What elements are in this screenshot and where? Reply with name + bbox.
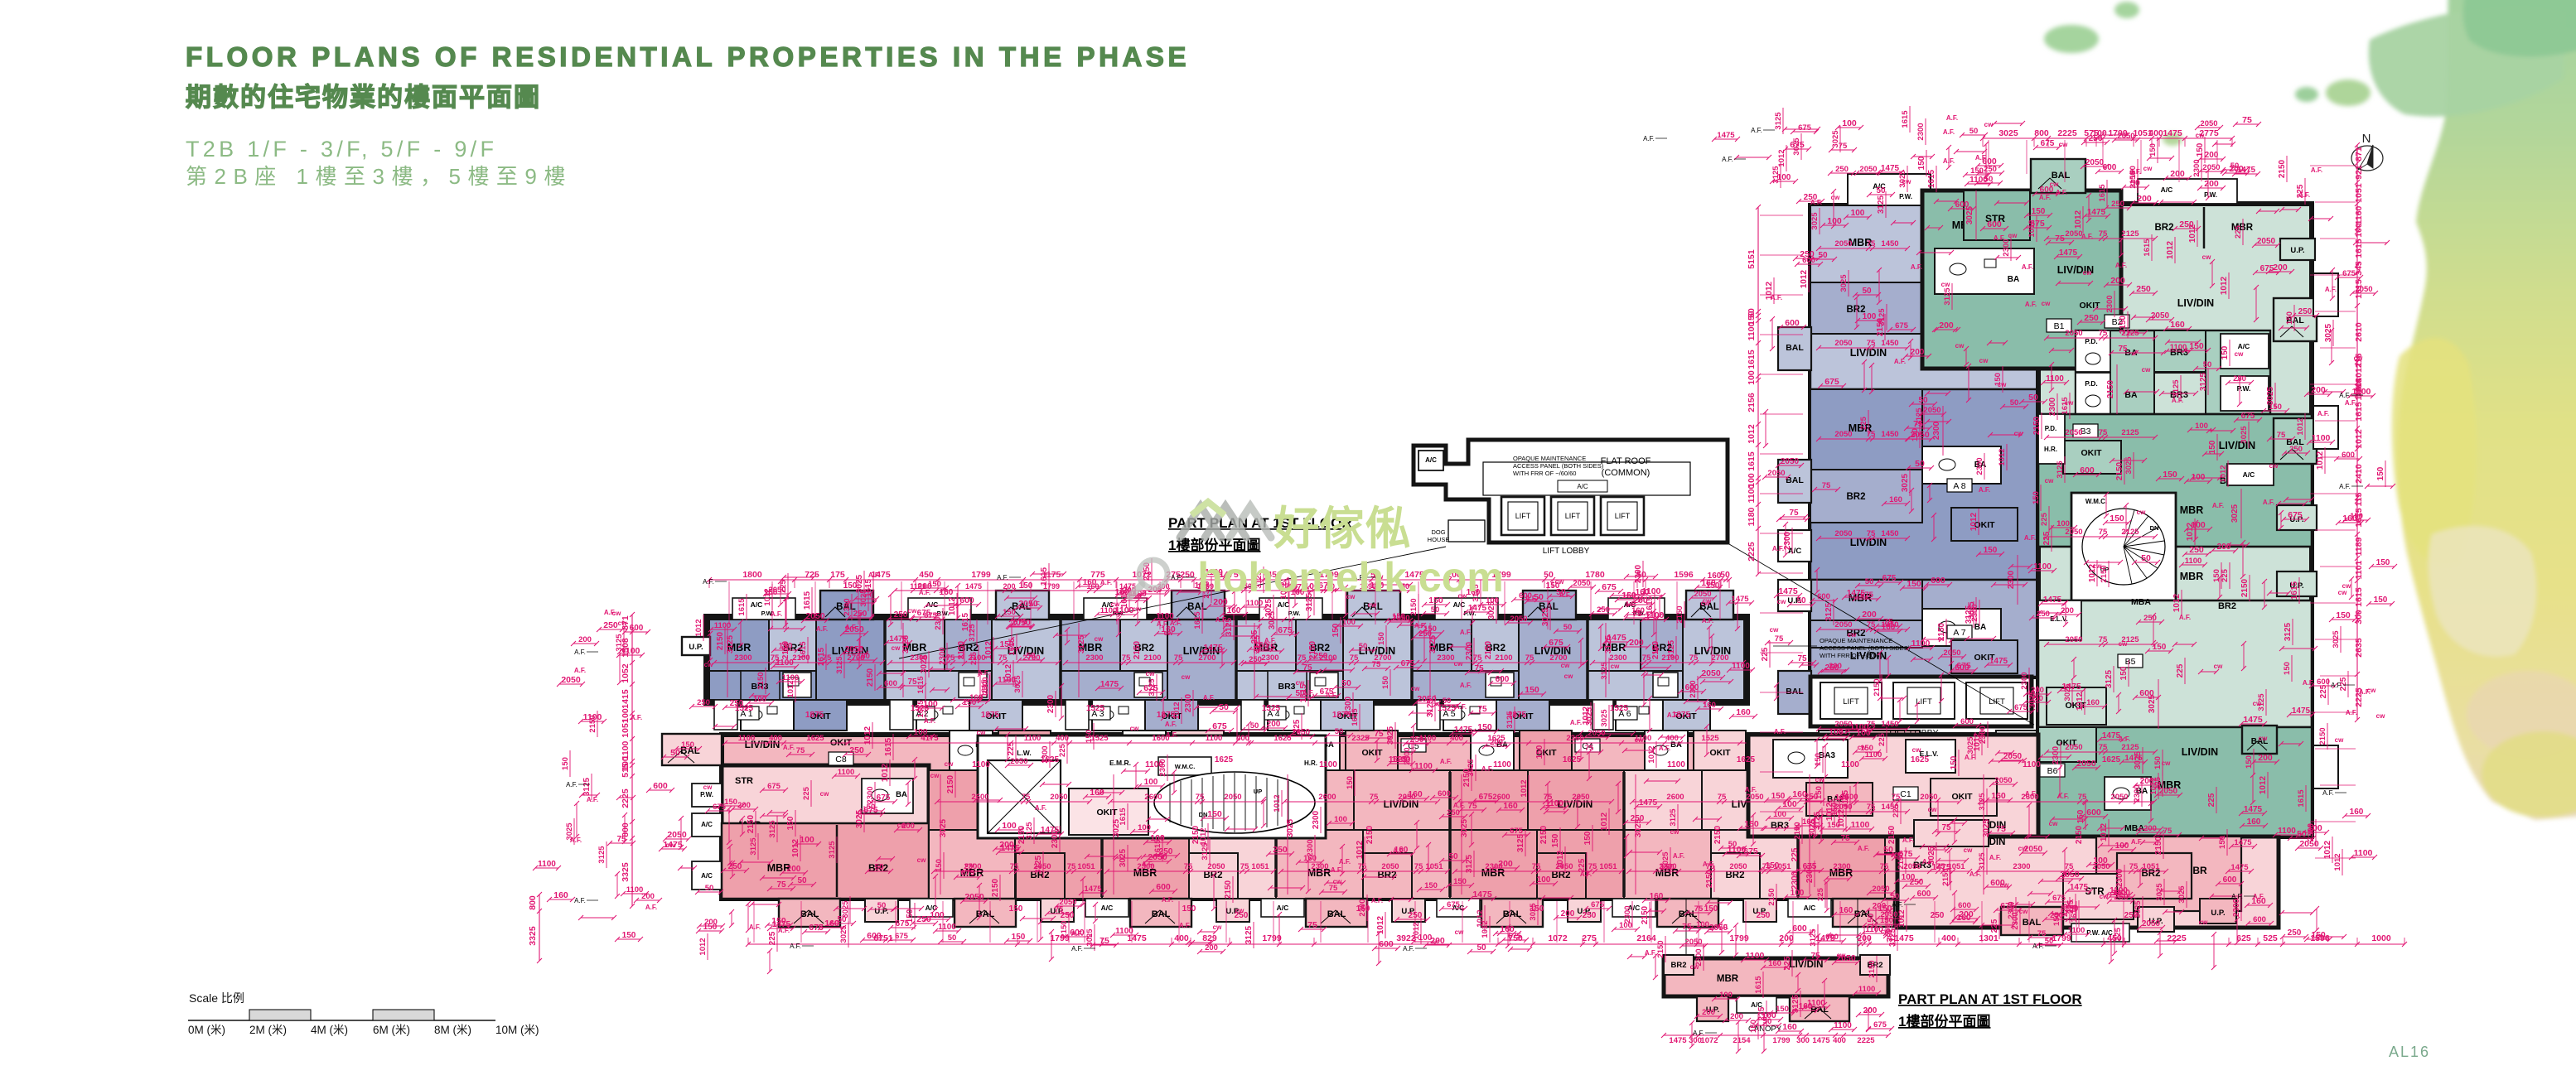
svg-text:1012: 1012 bbox=[1172, 702, 1182, 719]
svg-text:250: 250 bbox=[2143, 614, 2157, 623]
svg-text:cw: cw bbox=[2018, 845, 2027, 852]
svg-text:100: 100 bbox=[2093, 856, 2108, 866]
svg-text:600: 600 bbox=[1438, 789, 1451, 798]
svg-text:225: 225 bbox=[1058, 743, 1067, 757]
svg-text:3025: 3025 bbox=[2240, 426, 2249, 444]
svg-text:cw: cw bbox=[1777, 598, 1786, 605]
svg-text:1100: 1100 bbox=[1911, 639, 1931, 649]
svg-text:675: 675 bbox=[1591, 900, 1605, 909]
svg-text:3025: 3025 bbox=[1386, 726, 1395, 745]
svg-text:2300: 2300 bbox=[1085, 653, 1103, 663]
svg-text:160: 160 bbox=[1703, 701, 1716, 710]
svg-text:2050: 2050 bbox=[1588, 729, 1605, 738]
svg-text:250: 250 bbox=[2289, 445, 2303, 454]
svg-text:675: 675 bbox=[2241, 412, 2255, 421]
svg-text:2050: 2050 bbox=[1510, 615, 1527, 624]
svg-text:1475: 1475 bbox=[1717, 131, 1735, 140]
svg-text:250: 250 bbox=[2089, 134, 2103, 143]
svg-text:675: 675 bbox=[2014, 703, 2028, 712]
svg-text:1525: 1525 bbox=[1262, 704, 1281, 713]
svg-text:50: 50 bbox=[1443, 697, 1452, 706]
svg-text:150: 150 bbox=[2245, 755, 2254, 769]
svg-text:150: 150 bbox=[2374, 596, 2388, 605]
svg-text:1450: 1450 bbox=[1881, 430, 1898, 439]
svg-text:LIV/DIN: LIV/DIN bbox=[1850, 347, 1887, 359]
svg-text:2600: 2600 bbox=[1666, 793, 1684, 802]
svg-text:100: 100 bbox=[2354, 223, 2364, 238]
svg-text:2300: 2300 bbox=[1312, 810, 1321, 829]
svg-text:50: 50 bbox=[2203, 360, 2212, 369]
svg-text:1100: 1100 bbox=[1728, 845, 1747, 855]
svg-text:cw: cw bbox=[820, 790, 829, 798]
svg-text:P.W.: P.W. bbox=[2237, 384, 2251, 393]
svg-text:cw: cw bbox=[1368, 601, 1377, 609]
svg-text:2150: 2150 bbox=[2318, 727, 2327, 745]
svg-text:150: 150 bbox=[2110, 514, 2124, 523]
svg-text:50: 50 bbox=[1796, 596, 1806, 605]
svg-text:cw: cw bbox=[2049, 820, 2058, 827]
svg-text:cw: cw bbox=[2119, 640, 2128, 648]
svg-text:cw: cw bbox=[2269, 462, 2279, 470]
svg-text:3025: 3025 bbox=[565, 822, 574, 841]
svg-text:1012: 1012 bbox=[1600, 812, 1609, 831]
svg-text:200: 200 bbox=[2031, 686, 2044, 695]
svg-text:1615: 1615 bbox=[1747, 451, 1757, 471]
svg-text:225: 225 bbox=[969, 651, 979, 665]
svg-text:1475: 1475 bbox=[2087, 208, 2106, 217]
svg-text:250: 250 bbox=[2037, 610, 2050, 619]
svg-text:600: 600 bbox=[2223, 875, 2237, 885]
svg-text:250: 250 bbox=[849, 745, 864, 755]
svg-text:cw: cw bbox=[1635, 736, 1644, 744]
svg-text:2300: 2300 bbox=[1805, 864, 1815, 883]
svg-text:HOUSE: HOUSE bbox=[1428, 536, 1450, 543]
svg-text:LIV/DIN: LIV/DIN bbox=[2182, 746, 2218, 758]
svg-text:W.M.C.: W.M.C. bbox=[2085, 498, 2107, 505]
svg-text:FLAT ROOF: FLAT ROOF bbox=[1601, 456, 1651, 466]
svg-text:250: 250 bbox=[2114, 892, 2129, 902]
svg-text:150: 150 bbox=[2032, 491, 2041, 504]
svg-text:cw: cw bbox=[1564, 673, 1573, 680]
svg-text:675: 675 bbox=[1895, 321, 1909, 330]
svg-text:3125: 3125 bbox=[1791, 994, 1800, 1013]
svg-text:150: 150 bbox=[2285, 311, 2294, 325]
svg-text:600: 600 bbox=[1931, 576, 1945, 586]
svg-text:1525: 1525 bbox=[1610, 704, 1629, 713]
svg-text:A.F.: A.F. bbox=[2311, 166, 2322, 174]
svg-text:1100: 1100 bbox=[738, 734, 756, 743]
svg-text:A.F.: A.F. bbox=[1810, 199, 1822, 206]
svg-text:A.F.: A.F. bbox=[1171, 574, 1182, 581]
svg-text:75: 75 bbox=[1477, 705, 1487, 714]
svg-text:225: 225 bbox=[2176, 663, 2185, 678]
svg-text:1450: 1450 bbox=[1881, 529, 1898, 538]
svg-text:200: 200 bbox=[2258, 753, 2273, 763]
svg-text:200: 200 bbox=[2204, 179, 2219, 189]
svg-text:A.F.: A.F. bbox=[645, 904, 657, 911]
svg-text:400: 400 bbox=[1236, 734, 1249, 743]
svg-text:100: 100 bbox=[2195, 422, 2208, 431]
svg-text:75: 75 bbox=[1532, 862, 1541, 871]
svg-text:1012: 1012 bbox=[694, 619, 703, 636]
svg-text:50: 50 bbox=[1026, 652, 1036, 661]
svg-text:P.W.: P.W. bbox=[700, 791, 713, 798]
svg-text:1012: 1012 bbox=[1777, 149, 1786, 166]
svg-text:50: 50 bbox=[2297, 829, 2307, 839]
svg-text:LIV/DIN: LIV/DIN bbox=[2219, 440, 2255, 451]
svg-text:B6: B6 bbox=[2047, 766, 2058, 776]
svg-text:A.F.: A.F. bbox=[1216, 616, 1227, 624]
svg-text:50: 50 bbox=[877, 901, 887, 910]
svg-text:cw: cw bbox=[2199, 919, 2208, 926]
svg-text:50: 50 bbox=[1448, 852, 1458, 861]
svg-text:1012: 1012 bbox=[1376, 915, 1385, 934]
svg-text:75: 75 bbox=[2277, 431, 2286, 440]
svg-text:1475: 1475 bbox=[1100, 680, 1119, 689]
svg-text:N: N bbox=[2362, 132, 2371, 146]
svg-text:2150: 2150 bbox=[1060, 920, 1069, 938]
svg-text:A.F.: A.F. bbox=[2346, 709, 2357, 716]
svg-text:225: 225 bbox=[1892, 803, 1901, 817]
svg-text:LIFT LOBBY: LIFT LOBBY bbox=[1543, 547, 1590, 556]
svg-text:871: 871 bbox=[2354, 147, 2364, 162]
svg-text:2300: 2300 bbox=[2048, 397, 2057, 416]
svg-text:50: 50 bbox=[1876, 186, 1886, 195]
svg-text:675: 675 bbox=[863, 805, 878, 815]
svg-text:2300: 2300 bbox=[2052, 745, 2061, 764]
svg-text:A.F.: A.F. bbox=[783, 744, 795, 751]
svg-text:cw: cw bbox=[1979, 357, 1989, 364]
svg-text:1012: 1012 bbox=[2259, 775, 2268, 794]
svg-text:2050: 2050 bbox=[2076, 759, 2096, 769]
svg-text:A.F.: A.F. bbox=[574, 897, 586, 904]
svg-text:cw: cw bbox=[2083, 269, 2092, 277]
svg-text:A.F.: A.F. bbox=[2024, 534, 2036, 542]
svg-text:A.F.: A.F. bbox=[2317, 410, 2329, 417]
svg-text:2150: 2150 bbox=[946, 774, 955, 793]
svg-text:675: 675 bbox=[1143, 683, 1158, 693]
svg-text:675: 675 bbox=[1013, 618, 1027, 627]
svg-text:225: 225 bbox=[1816, 887, 1825, 901]
svg-text:2050: 2050 bbox=[2110, 793, 2128, 802]
svg-text:100: 100 bbox=[1747, 370, 1757, 385]
svg-text:3125: 3125 bbox=[1888, 928, 1897, 947]
svg-text:100: 100 bbox=[1619, 921, 1632, 930]
svg-text:160: 160 bbox=[1083, 578, 1097, 587]
svg-text:MBA: MBA bbox=[2131, 597, 2151, 607]
svg-text:2300: 2300 bbox=[1184, 693, 1193, 712]
svg-text:A.F.: A.F. bbox=[1946, 114, 1958, 122]
svg-text:1615: 1615 bbox=[2143, 239, 2152, 257]
svg-text:2050: 2050 bbox=[561, 675, 581, 685]
svg-text:cw: cw bbox=[1701, 600, 1710, 607]
svg-text:cw: cw bbox=[1411, 685, 1420, 692]
svg-text:3125: 3125 bbox=[749, 837, 758, 856]
svg-text:cw: cw bbox=[1235, 907, 1245, 914]
svg-text:1475: 1475 bbox=[2230, 863, 2249, 872]
svg-text:75: 75 bbox=[2099, 428, 2108, 437]
svg-text:1615: 1615 bbox=[2098, 184, 2107, 202]
svg-text:400: 400 bbox=[1941, 933, 1956, 943]
svg-text:2300: 2300 bbox=[1261, 653, 1278, 663]
svg-text:75: 75 bbox=[2099, 329, 2108, 338]
svg-text:150: 150 bbox=[2196, 142, 2205, 157]
svg-text:200: 200 bbox=[1911, 348, 1925, 357]
svg-text:BA: BA bbox=[2008, 275, 2019, 284]
svg-text:2150: 2150 bbox=[1224, 880, 1233, 899]
svg-text:DOG: DOG bbox=[1431, 528, 1445, 536]
svg-text:675: 675 bbox=[2288, 510, 2303, 520]
svg-text:1012: 1012 bbox=[1582, 706, 1591, 725]
svg-text:cw: cw bbox=[1095, 635, 1104, 643]
svg-text:675: 675 bbox=[1278, 625, 1293, 635]
svg-text:3125: 3125 bbox=[1669, 808, 1678, 827]
svg-text:675: 675 bbox=[1824, 377, 1839, 387]
svg-text:1012: 1012 bbox=[984, 640, 993, 659]
svg-text:3125: 3125 bbox=[1426, 698, 1435, 717]
svg-text:600: 600 bbox=[1792, 923, 1807, 933]
svg-text:2050: 2050 bbox=[1920, 793, 1937, 802]
svg-text:200: 200 bbox=[2110, 276, 2125, 286]
svg-text:2225: 2225 bbox=[2057, 128, 2077, 138]
svg-text:1100: 1100 bbox=[2278, 827, 2296, 836]
svg-text:150: 150 bbox=[1453, 877, 1467, 886]
svg-text:P.W.: P.W. bbox=[2204, 191, 2217, 199]
svg-text:200: 200 bbox=[1939, 321, 1954, 330]
svg-text:75: 75 bbox=[1840, 834, 1850, 843]
svg-text:A.F.: A.F. bbox=[1339, 858, 1351, 866]
svg-text:2300: 2300 bbox=[1158, 759, 1167, 776]
svg-text:75: 75 bbox=[1941, 823, 1951, 832]
svg-text:cw: cw bbox=[1555, 578, 1564, 586]
svg-text:250: 250 bbox=[1249, 655, 1262, 664]
svg-text:2150: 2150 bbox=[747, 814, 756, 833]
svg-text:200: 200 bbox=[917, 581, 932, 591]
svg-text:cw: cw bbox=[2354, 354, 2363, 362]
svg-text:150: 150 bbox=[1000, 640, 1014, 649]
svg-text:2164: 2164 bbox=[1636, 933, 1656, 943]
svg-text:BA: BA bbox=[896, 790, 907, 799]
svg-text:75: 75 bbox=[1350, 653, 1359, 663]
svg-text:250: 250 bbox=[1273, 845, 1288, 855]
svg-text:1450: 1450 bbox=[1881, 239, 1898, 248]
svg-text:A.F.: A.F. bbox=[1035, 804, 1046, 812]
svg-text:600: 600 bbox=[1379, 939, 1394, 949]
svg-text:1475: 1475 bbox=[965, 582, 982, 591]
svg-text:3125: 3125 bbox=[1505, 711, 1515, 729]
svg-text:A.F.: A.F. bbox=[2119, 735, 2130, 743]
svg-text:200: 200 bbox=[1629, 638, 1644, 648]
svg-text:200: 200 bbox=[578, 635, 592, 644]
svg-text:2050: 2050 bbox=[2200, 119, 2217, 128]
svg-text:LIV/DIN: LIV/DIN bbox=[1790, 960, 1824, 970]
svg-text:600: 600 bbox=[1982, 157, 1997, 166]
svg-text:600: 600 bbox=[2086, 808, 2101, 817]
svg-text:150: 150 bbox=[779, 642, 793, 651]
svg-text:160: 160 bbox=[2086, 698, 2100, 707]
svg-text:A.F.: A.F. bbox=[1142, 861, 1153, 868]
svg-text:75: 75 bbox=[1585, 744, 1594, 753]
svg-text:675: 675 bbox=[917, 609, 931, 618]
svg-text:200: 200 bbox=[1730, 1012, 1743, 1021]
svg-text:1012: 1012 bbox=[948, 596, 957, 615]
svg-text:BAL: BAL bbox=[2052, 171, 2071, 181]
svg-text:1475: 1475 bbox=[1778, 586, 1798, 596]
svg-text:1525: 1525 bbox=[1701, 734, 1719, 743]
svg-text:LIFT: LIFT bbox=[1515, 512, 1531, 520]
svg-text:250: 250 bbox=[2050, 911, 2063, 920]
svg-text:160: 160 bbox=[1889, 495, 1902, 504]
svg-text:75: 75 bbox=[1694, 904, 1704, 914]
svg-text:75: 75 bbox=[907, 678, 917, 687]
svg-text:100: 100 bbox=[1418, 933, 1433, 943]
svg-text:250: 250 bbox=[730, 699, 744, 708]
svg-text:150: 150 bbox=[906, 909, 915, 923]
svg-text:50: 50 bbox=[1818, 251, 1828, 260]
svg-text:75: 75 bbox=[1474, 664, 1484, 673]
svg-text:50: 50 bbox=[1720, 570, 1730, 580]
svg-text:BR2: BR2 bbox=[2218, 601, 2236, 611]
svg-text:A.F.: A.F. bbox=[1858, 845, 1869, 852]
svg-text:150: 150 bbox=[2350, 512, 2363, 521]
svg-text:515: 515 bbox=[621, 763, 631, 778]
svg-text:2600: 2600 bbox=[1318, 793, 1336, 802]
svg-text:5151: 5151 bbox=[1747, 249, 1757, 269]
svg-text:400: 400 bbox=[1665, 734, 1679, 743]
svg-text:75: 75 bbox=[1867, 803, 1876, 812]
svg-text:1475: 1475 bbox=[2163, 128, 2182, 138]
svg-text:3125: 3125 bbox=[828, 841, 837, 859]
svg-text:B1: B1 bbox=[2054, 321, 2065, 331]
svg-text:1012: 1012 bbox=[2296, 417, 2305, 435]
svg-text:A.F.: A.F. bbox=[566, 781, 578, 788]
svg-text:A.F.: A.F. bbox=[2032, 943, 2044, 950]
svg-text:cw: cw bbox=[1831, 194, 1840, 201]
svg-text:cw: cw bbox=[917, 856, 926, 864]
svg-text:75: 75 bbox=[1789, 509, 1799, 518]
svg-text:1475: 1475 bbox=[2237, 166, 2256, 175]
svg-text:921: 921 bbox=[2354, 165, 2364, 180]
svg-text:150: 150 bbox=[1003, 608, 1016, 617]
svg-text:250: 250 bbox=[2298, 307, 2313, 316]
svg-text:1615: 1615 bbox=[2290, 581, 2299, 600]
svg-text:2050: 2050 bbox=[1903, 862, 1921, 871]
svg-text:LIFT: LIFT bbox=[1989, 697, 2005, 706]
svg-text:150: 150 bbox=[1392, 612, 1405, 621]
svg-text:250: 250 bbox=[697, 698, 710, 707]
svg-text:Scale 比例: Scale 比例 bbox=[189, 991, 244, 1005]
svg-text:1625: 1625 bbox=[1737, 755, 1756, 764]
svg-text:2300: 2300 bbox=[2013, 862, 2030, 871]
svg-text:cw: cw bbox=[612, 610, 621, 617]
svg-text:1051: 1051 bbox=[1251, 862, 1269, 871]
svg-text:1100: 1100 bbox=[1115, 927, 1133, 936]
svg-text:A.F.: A.F. bbox=[1969, 870, 1981, 878]
svg-text:BA: BA bbox=[1974, 623, 1986, 632]
svg-text:3125: 3125 bbox=[1978, 793, 1987, 811]
svg-text:A.F.: A.F. bbox=[2179, 614, 2191, 621]
svg-text:160: 160 bbox=[1782, 1022, 1797, 1032]
svg-text:A.F.: A.F. bbox=[1331, 866, 1342, 874]
svg-text:2300: 2300 bbox=[2020, 672, 2029, 689]
svg-text:3125: 3125 bbox=[1245, 925, 1254, 944]
svg-text:150: 150 bbox=[1917, 156, 1926, 170]
svg-text:1100: 1100 bbox=[1667, 760, 1685, 769]
svg-text:W.M.C.: W.M.C. bbox=[1175, 763, 1196, 770]
svg-text:200: 200 bbox=[1779, 933, 1794, 943]
svg-text:U.P.: U.P. bbox=[2290, 246, 2304, 255]
svg-text:225: 225 bbox=[2114, 927, 2123, 941]
svg-text:1475: 1475 bbox=[2292, 706, 2311, 716]
svg-text:200: 200 bbox=[704, 918, 718, 927]
svg-text:2050: 2050 bbox=[1943, 649, 1960, 658]
svg-text:期數的住宅物業的樓面平面圖: 期數的住宅物業的樓面平面圖 bbox=[186, 83, 541, 112]
svg-text:1475: 1475 bbox=[2043, 596, 2062, 605]
svg-text:1100: 1100 bbox=[776, 658, 794, 668]
svg-text:cw: cw bbox=[930, 772, 940, 779]
svg-text:BR2: BR2 bbox=[1551, 870, 1570, 880]
svg-text:2050: 2050 bbox=[1010, 757, 1027, 766]
svg-text:675: 675 bbox=[1882, 574, 1897, 583]
svg-text:cw: cw bbox=[1455, 928, 1464, 936]
svg-text:cw: cw bbox=[2014, 430, 2023, 437]
svg-text:150: 150 bbox=[1766, 861, 1780, 870]
svg-text:2050: 2050 bbox=[1834, 339, 1852, 348]
svg-text:A.F.: A.F. bbox=[1979, 486, 1990, 494]
svg-text:75: 75 bbox=[1892, 793, 1901, 802]
svg-text:2050: 2050 bbox=[1781, 457, 1800, 466]
svg-text:600: 600 bbox=[2253, 915, 2266, 924]
svg-text:A/C: A/C bbox=[2238, 342, 2250, 350]
svg-text:2050: 2050 bbox=[1834, 430, 1852, 439]
svg-text:A.F.: A.F. bbox=[1570, 719, 1582, 726]
svg-text:1615: 1615 bbox=[2354, 239, 2364, 258]
svg-text:A.F.: A.F. bbox=[1643, 135, 1655, 142]
svg-text:2154: 2154 bbox=[1733, 1036, 1751, 1045]
svg-text:225: 225 bbox=[2040, 512, 2049, 526]
svg-text:2300: 2300 bbox=[1783, 531, 1792, 550]
svg-text:2150: 2150 bbox=[1365, 825, 1375, 844]
svg-text:cw: cw bbox=[977, 729, 986, 736]
svg-text:1100: 1100 bbox=[2185, 557, 2202, 566]
svg-text:150: 150 bbox=[2376, 466, 2385, 480]
svg-text:4M (米): 4M (米) bbox=[311, 1024, 348, 1036]
svg-text:150: 150 bbox=[2148, 143, 2158, 157]
svg-text:3125: 3125 bbox=[1878, 308, 1887, 326]
svg-text:400: 400 bbox=[1450, 734, 1463, 743]
svg-text:hohomehk.com: hohomehk.com bbox=[1197, 554, 1503, 600]
svg-text:cw: cw bbox=[703, 784, 713, 791]
svg-text:75: 75 bbox=[1240, 862, 1249, 871]
svg-text:250: 250 bbox=[1631, 814, 1645, 823]
svg-text:BR2: BR2 bbox=[2154, 223, 2173, 233]
svg-text:1875: 1875 bbox=[981, 711, 1000, 720]
svg-text:1012: 1012 bbox=[2076, 692, 2085, 711]
svg-text:1072: 1072 bbox=[1700, 1036, 1718, 1045]
svg-text:1450: 1450 bbox=[1881, 339, 1898, 348]
svg-text:100: 100 bbox=[2192, 473, 2206, 482]
svg-text:1475: 1475 bbox=[2234, 838, 2252, 847]
svg-text:A/C: A/C bbox=[1453, 600, 1466, 609]
svg-text:2100: 2100 bbox=[1495, 653, 1512, 663]
svg-text:3125: 3125 bbox=[768, 820, 777, 838]
svg-text:2150: 2150 bbox=[991, 878, 1000, 897]
svg-text:LIFT: LIFT bbox=[1615, 512, 1631, 520]
svg-text:200: 200 bbox=[2217, 542, 2231, 552]
svg-text:75: 75 bbox=[2078, 793, 2087, 802]
svg-text:2150: 2150 bbox=[1651, 640, 1660, 659]
svg-text:250: 250 bbox=[1835, 165, 1849, 174]
